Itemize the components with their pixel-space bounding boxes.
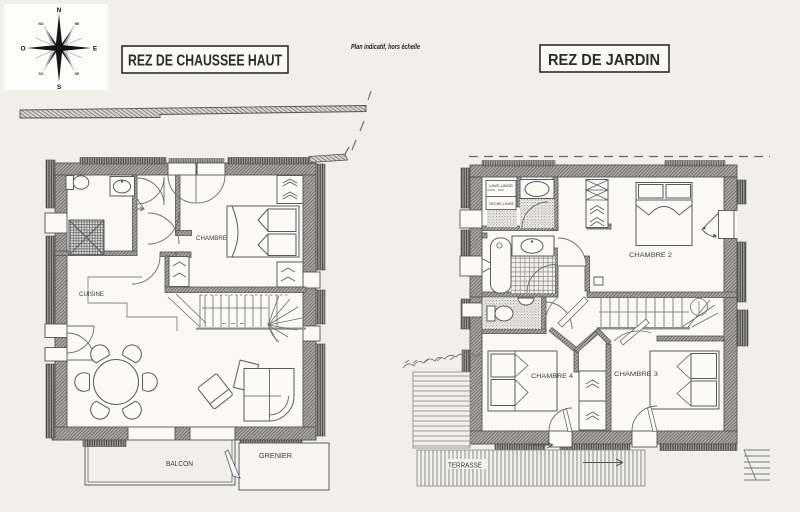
svg-text:LAVE-LINGE: LAVE-LINGE <box>489 184 513 188</box>
svg-text:E: E <box>93 46 98 53</box>
svg-text:SO: SO <box>38 72 43 76</box>
svg-text:REZ DE CHAUSSEE HAUT: REZ DE CHAUSSEE HAUT <box>128 53 282 70</box>
svg-text:NE: NE <box>75 22 81 26</box>
svg-text:SE: SE <box>75 72 80 76</box>
svg-text:GRENIER: GRENIER <box>259 453 292 460</box>
svg-text:CUISINE: CUISINE <box>79 291 104 298</box>
svg-text:NO: NO <box>38 22 44 26</box>
svg-text:S: S <box>57 84 62 91</box>
svg-text:SECHE-LINGE: SECHE-LINGE <box>489 202 514 206</box>
svg-text:REZ DE JARDIN: REZ DE JARDIN <box>548 52 660 69</box>
svg-text:N: N <box>57 7 62 14</box>
svg-text:CHAMBRE: CHAMBRE <box>196 235 228 242</box>
svg-text:O: O <box>20 46 25 53</box>
svg-text:CHAMBRE 4: CHAMBRE 4 <box>531 373 573 380</box>
svg-text:CHAMBRE 2: CHAMBRE 2 <box>629 252 672 259</box>
svg-text:TERRASSE: TERRASSE <box>448 463 482 470</box>
svg-text:Plan indicatif, hors échelle: Plan indicatif, hors échelle <box>351 44 420 51</box>
svg-text:BALCON: BALCON <box>166 461 193 468</box>
svg-text:CHAMBRE 3: CHAMBRE 3 <box>614 371 658 378</box>
